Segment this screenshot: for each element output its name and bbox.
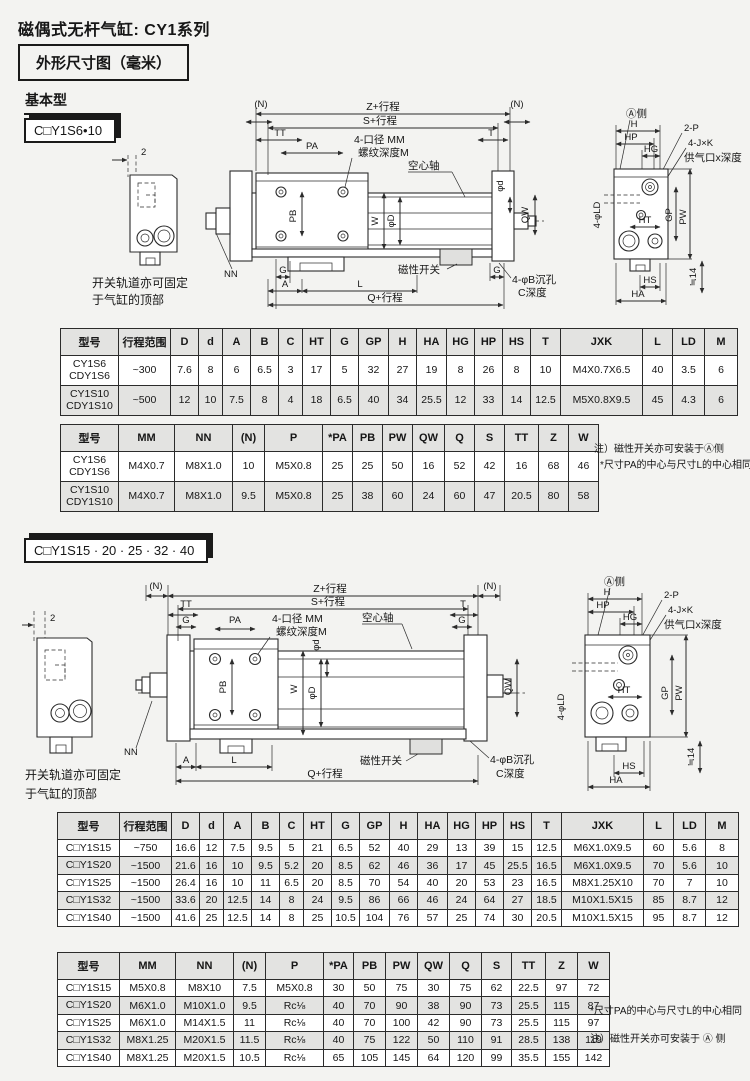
column-header: B bbox=[252, 813, 280, 840]
column-header: Z bbox=[546, 953, 578, 980]
value-cell: 76 bbox=[390, 909, 418, 926]
model-cell: C□Y1S40 bbox=[58, 1049, 120, 1066]
value-cell: M6X1.0 bbox=[120, 997, 176, 1014]
column-header: W bbox=[578, 953, 610, 980]
value-cell: 14 bbox=[503, 385, 531, 415]
column-header: H bbox=[390, 813, 418, 840]
value-cell: 6.5 bbox=[251, 356, 279, 386]
table-row: C□Y1S40~150041.62512.51482510.5104765725… bbox=[58, 909, 739, 926]
model-cell: C□Y1S25 bbox=[58, 874, 120, 891]
dim-approx14: ≒14 bbox=[688, 268, 699, 287]
column-header: NN bbox=[176, 953, 234, 980]
column-header: PB bbox=[354, 953, 386, 980]
column-header: L bbox=[644, 813, 674, 840]
value-cell: ~1500 bbox=[120, 874, 172, 891]
dim-g-left: G bbox=[279, 265, 286, 276]
value-cell: 42 bbox=[418, 1014, 450, 1031]
dim-phiD: φD bbox=[386, 214, 397, 227]
value-cell: 70 bbox=[360, 874, 390, 891]
dim-q-stroke: Q+行程 bbox=[307, 767, 343, 780]
label-hollow-shaft: 空心轴 bbox=[362, 611, 394, 624]
value-cell: M8X1.0 bbox=[175, 481, 233, 511]
value-cell: 47 bbox=[475, 481, 505, 511]
value-cell: 25 bbox=[448, 909, 476, 926]
magnetic-switch-block bbox=[410, 739, 442, 754]
value-cell: 20.5 bbox=[505, 481, 539, 511]
value-cell: 12 bbox=[706, 892, 739, 909]
dim-h: H bbox=[631, 119, 638, 130]
caption-line2: 于气缸的顶部 bbox=[25, 786, 97, 801]
dim-w: W bbox=[289, 684, 300, 693]
column-header: d bbox=[200, 813, 224, 840]
dim-a: A bbox=[282, 279, 289, 290]
value-cell: M8X10 bbox=[176, 980, 234, 997]
dim-pw: PW bbox=[678, 209, 689, 224]
column-header: QW bbox=[418, 953, 450, 980]
value-cell: 50 bbox=[354, 980, 386, 997]
column-header: H bbox=[389, 329, 417, 356]
column-header: QW bbox=[413, 425, 445, 452]
table-row: CY1S6 CDY1S6M4X0.7M8X1.010M5X0.825255016… bbox=[61, 452, 599, 482]
value-cell: M4X0.7 bbox=[119, 452, 175, 482]
value-cell: 27 bbox=[504, 892, 532, 909]
column-header: D bbox=[171, 329, 199, 356]
value-cell: 14 bbox=[252, 892, 280, 909]
column-header: PB bbox=[353, 425, 383, 452]
value-cell: 6.5 bbox=[332, 840, 360, 857]
label-bore: 4-口径 MM bbox=[354, 133, 405, 146]
value-cell: 16 bbox=[200, 874, 224, 891]
value-cell: 52 bbox=[445, 452, 475, 482]
dim-pa: PA bbox=[306, 141, 319, 152]
value-cell: 58 bbox=[569, 481, 599, 511]
label-thread-depth: 螺纹深度M bbox=[358, 146, 409, 159]
value-cell: 8.7 bbox=[674, 909, 706, 926]
value-cell: 70 bbox=[644, 874, 674, 891]
value-cell: 12.5 bbox=[531, 385, 561, 415]
label-c-depth: C深度 bbox=[518, 286, 547, 299]
value-cell: Rc⅛ bbox=[266, 1014, 324, 1031]
value-cell: 10 bbox=[706, 874, 739, 891]
table-row: C□Y1S15M5X0.8M8X107.5M5X0.83050753075622… bbox=[58, 980, 610, 997]
end-cap-left bbox=[230, 171, 252, 261]
table-row: C□Y1S20~150021.616109.55.2208.5624636174… bbox=[58, 857, 739, 874]
value-cell: 19 bbox=[417, 356, 447, 386]
value-cell: 33.6 bbox=[172, 892, 200, 909]
value-cell: M8X1.25 bbox=[120, 1049, 176, 1066]
column-header: JXK bbox=[561, 329, 643, 356]
value-cell: 142 bbox=[578, 1049, 610, 1066]
value-cell: 6 bbox=[223, 356, 251, 386]
dim-phiD: φD bbox=[307, 686, 318, 699]
value-cell: 60 bbox=[445, 481, 475, 511]
value-cell: 10 bbox=[224, 874, 252, 891]
value-cell: 23 bbox=[504, 874, 532, 891]
page-title: 磁偶式无杆气缸: CY1系列 bbox=[18, 16, 210, 40]
table-row: C□Y1S20M6X1.0M10X1.09.5Rc⅛40709038907325… bbox=[58, 997, 610, 1014]
value-cell: 40 bbox=[643, 356, 673, 386]
value-cell: 8 bbox=[280, 892, 304, 909]
column-header: P bbox=[266, 953, 324, 980]
value-cell: 12 bbox=[200, 840, 224, 857]
value-cell: M8X1.0 bbox=[175, 452, 233, 482]
value-cell: 5 bbox=[331, 356, 359, 386]
value-cell: 65 bbox=[324, 1049, 354, 1066]
column-header: 型号 bbox=[58, 813, 120, 840]
dim-h: H bbox=[604, 587, 611, 598]
value-cell: 34 bbox=[389, 385, 417, 415]
switch-rail bbox=[190, 729, 466, 739]
dim-l: L bbox=[357, 279, 362, 290]
value-cell: 4.3 bbox=[673, 385, 705, 415]
column-header: C bbox=[280, 813, 304, 840]
value-cell: M20X1.5 bbox=[176, 1032, 234, 1049]
model-cell: CY1S6 CDY1S6 bbox=[61, 356, 119, 386]
value-cell: 7.5 bbox=[223, 385, 251, 415]
column-header: B bbox=[251, 329, 279, 356]
value-cell: M6X1.0X9.5 bbox=[562, 857, 644, 874]
value-cell: 40 bbox=[324, 1014, 354, 1031]
value-cell: 50 bbox=[418, 1032, 450, 1049]
column-header: 行程范围 bbox=[119, 329, 171, 356]
value-cell: 10 bbox=[199, 385, 223, 415]
dim-n-right: (N) bbox=[483, 581, 496, 592]
value-cell: 73 bbox=[482, 997, 512, 1014]
shaft-nut-left bbox=[150, 673, 167, 697]
value-cell: 75 bbox=[386, 980, 418, 997]
column-header: TT bbox=[512, 953, 546, 980]
dim-t: T bbox=[488, 128, 494, 139]
value-cell: 91 bbox=[482, 1032, 512, 1049]
table-row: C□Y1S40M8X1.25M20X1.510.5Rc⅛651051456412… bbox=[58, 1049, 610, 1066]
value-cell: 8 bbox=[503, 356, 531, 386]
dim-hp: HP bbox=[596, 600, 609, 611]
label-4jxk: 4-J×K bbox=[668, 605, 694, 616]
value-cell: 30 bbox=[418, 980, 450, 997]
value-cell: 12 bbox=[706, 909, 739, 926]
column-header: 型号 bbox=[61, 329, 119, 356]
value-cell: M8X1.25X10 bbox=[562, 874, 644, 891]
column-header: HA bbox=[417, 329, 447, 356]
dim-pb: PB bbox=[218, 681, 229, 694]
column-header: C bbox=[279, 329, 303, 356]
table-row: C□Y1S25~150026.41610116.5208.57054402053… bbox=[58, 874, 739, 891]
value-cell: 16 bbox=[505, 452, 539, 482]
dim-l: L bbox=[231, 755, 236, 766]
value-cell: Rc⅛ bbox=[266, 1049, 324, 1066]
label-port-depth: 供气口x深度 bbox=[664, 618, 722, 631]
value-cell: 90 bbox=[450, 997, 482, 1014]
value-cell: 8 bbox=[280, 909, 304, 926]
column-header: JXK bbox=[562, 813, 644, 840]
dim-hp: HP bbox=[624, 132, 637, 143]
value-cell: M8X1.25 bbox=[120, 1032, 176, 1049]
note-2-line-2: 注）磁性开关亦可安装于 Ⓐ 侧 bbox=[590, 1030, 726, 1045]
side-view: Ⓐ侧 H HP HG 2-P 4-J×K 供气口x深度 HT 4- bbox=[556, 575, 722, 791]
value-cell: 25.5 bbox=[417, 385, 447, 415]
value-cell: 90 bbox=[386, 997, 418, 1014]
dim-a: A bbox=[183, 755, 190, 766]
value-cell: 50 bbox=[383, 452, 413, 482]
dim-qw: QW bbox=[520, 207, 531, 223]
dim-w: W bbox=[370, 216, 381, 225]
catalog-page: 磁偶式无杆气缸: CY1系列 外形尺寸图（毫米） 基本型 C□Y1S6•10 2… bbox=[0, 0, 750, 1081]
value-cell: M20X1.5 bbox=[176, 1049, 234, 1066]
label-counterbore: 4-φB沉孔 bbox=[490, 753, 535, 766]
value-cell: 4 bbox=[279, 385, 303, 415]
label-nn: NN bbox=[124, 747, 138, 758]
value-cell: Rc⅛ bbox=[266, 997, 324, 1014]
column-header: A bbox=[223, 329, 251, 356]
value-cell: 25.5 bbox=[504, 857, 532, 874]
label-magnetic-switch: 磁性开关 bbox=[398, 263, 440, 276]
data-table: 型号行程范围DdABCHTGGPHHAHGHPHSTJXKLLDMC□Y1S15… bbox=[57, 812, 739, 927]
value-cell: 8.7 bbox=[674, 892, 706, 909]
value-cell: 10 bbox=[233, 452, 265, 482]
dim-phid: φd bbox=[495, 180, 506, 191]
value-cell: 73 bbox=[482, 1014, 512, 1031]
dim-hg: HG bbox=[644, 144, 658, 155]
column-header: Q bbox=[445, 425, 475, 452]
value-cell: 9.5 bbox=[252, 857, 280, 874]
value-cell: 155 bbox=[546, 1049, 578, 1066]
model-cell: C□Y1S40 bbox=[58, 909, 120, 926]
value-cell: 5.6 bbox=[674, 857, 706, 874]
value-cell: M6X1.0X9.5 bbox=[562, 840, 644, 857]
end-cap-right bbox=[464, 635, 487, 741]
value-cell: 15 bbox=[504, 840, 532, 857]
value-cell: 3.5 bbox=[673, 356, 705, 386]
value-cell: 8.5 bbox=[332, 857, 360, 874]
value-cell: 35.5 bbox=[512, 1049, 546, 1066]
column-header: TT bbox=[505, 425, 539, 452]
model-cell: C□Y1S32 bbox=[58, 892, 120, 909]
column-header: Q bbox=[450, 953, 482, 980]
dim-qw: QW bbox=[503, 679, 514, 695]
end-view-left: 2 开关轨道亦可固定 于气缸的顶部 bbox=[92, 147, 188, 307]
value-cell: 25 bbox=[200, 909, 224, 926]
value-cell: 62 bbox=[482, 980, 512, 997]
table-row: CY1S10 CDY1S10M4X0.7M8X1.09.5M5X0.825386… bbox=[61, 481, 599, 511]
value-cell: 3 bbox=[279, 356, 303, 386]
value-cell: 16.5 bbox=[532, 874, 562, 891]
column-header: HS bbox=[504, 813, 532, 840]
dim-ht: HT bbox=[639, 215, 652, 226]
column-header: MM bbox=[119, 425, 175, 452]
value-cell: 46 bbox=[569, 452, 599, 482]
value-cell: 6.5 bbox=[280, 874, 304, 891]
value-cell: 8 bbox=[447, 356, 475, 386]
value-cell: 9.5 bbox=[234, 997, 266, 1014]
label-port-depth: 供气口x深度 bbox=[684, 151, 742, 164]
dim-hs: HS bbox=[622, 761, 635, 772]
value-cell: 145 bbox=[386, 1049, 418, 1066]
dim-tt: TT bbox=[274, 128, 286, 139]
column-header: HT bbox=[304, 813, 332, 840]
switch-rail-foot bbox=[140, 252, 160, 265]
value-cell: 64 bbox=[476, 892, 504, 909]
value-cell: 24 bbox=[304, 892, 332, 909]
column-header: (N) bbox=[233, 425, 265, 452]
column-header: MM bbox=[120, 953, 176, 980]
note-1-line-2: *尺寸PA的中心与尺寸L的中心相同 bbox=[600, 456, 750, 471]
table-row: C□Y1S25M6X1.0M14X1.511Rc⅛407010042907325… bbox=[58, 1014, 610, 1031]
dim-hg: HG bbox=[623, 612, 637, 623]
value-cell: 57 bbox=[418, 909, 448, 926]
value-cell: 11 bbox=[234, 1014, 266, 1031]
note-1-line-1: 注）磁性开关亦可安装于Ⓐ侧 bbox=[594, 440, 724, 455]
value-cell: ~300 bbox=[119, 356, 171, 386]
value-cell: 115 bbox=[546, 1014, 578, 1031]
label-hollow-shaft: 空心轴 bbox=[408, 159, 440, 172]
value-cell: M10X1.0 bbox=[176, 997, 234, 1014]
column-header: (N) bbox=[234, 953, 266, 980]
note-2-line-1: *尺寸PA的中心与尺寸L的中心相同 bbox=[590, 1002, 742, 1017]
value-cell: 6 bbox=[705, 356, 738, 386]
dimension-table-2: 型号MMNN(N)P*PAPBPWQWQSTTZWCY1S6 CDY1S6M4X… bbox=[60, 424, 599, 512]
dim-z-stroke: Z+行程 bbox=[313, 582, 347, 595]
value-cell: 29 bbox=[418, 840, 448, 857]
value-cell: 16 bbox=[200, 857, 224, 874]
shaft-nut-right bbox=[487, 675, 503, 697]
magnetic-switch-block bbox=[440, 249, 472, 265]
model-cell: C□Y1S15 bbox=[58, 980, 120, 997]
column-header: G bbox=[331, 329, 359, 356]
model-cell: C□Y1S15 bbox=[58, 840, 120, 857]
column-header: HG bbox=[447, 329, 475, 356]
slider-block bbox=[256, 173, 368, 255]
value-cell: 100 bbox=[386, 1014, 418, 1031]
value-cell: 11.5 bbox=[234, 1032, 266, 1049]
column-header: L bbox=[643, 329, 673, 356]
value-cell: 40 bbox=[359, 385, 389, 415]
value-cell: M10X1.5X15 bbox=[562, 909, 644, 926]
value-cell: M4X0.7 bbox=[119, 481, 175, 511]
label-nn: NN bbox=[224, 269, 238, 280]
label-2p: 2-P bbox=[684, 123, 699, 134]
value-cell: 12 bbox=[447, 385, 475, 415]
model-cell: C□Y1S20 bbox=[58, 857, 120, 874]
drawing-large-type: 2 开关轨道亦可固定 于气缸的顶部 bbox=[0, 565, 750, 810]
value-cell: 42 bbox=[475, 452, 505, 482]
column-header: NN bbox=[175, 425, 233, 452]
label-thread-depth: 螺纹深度M bbox=[276, 625, 327, 638]
value-cell: 18.5 bbox=[532, 892, 562, 909]
column-header: T bbox=[532, 813, 562, 840]
value-cell: M14X1.5 bbox=[176, 1014, 234, 1031]
column-header: S bbox=[475, 425, 505, 452]
data-table: 型号行程范围DdABCHTGGPHHAHGHPHSTJXKLLDMCY1S6 C… bbox=[60, 328, 738, 416]
value-cell: 17 bbox=[448, 857, 476, 874]
dim-approx14: ≒14 bbox=[686, 748, 697, 767]
dimension-table-1: 型号行程范围DdABCHTGGPHHAHGHPHSTJXKLLDMCY1S6 C… bbox=[60, 328, 738, 416]
value-cell: 72 bbox=[578, 980, 610, 997]
value-cell: 20.5 bbox=[532, 909, 562, 926]
dim-t: T bbox=[460, 599, 466, 610]
slider-block bbox=[194, 639, 278, 735]
value-cell: 10 bbox=[531, 356, 561, 386]
dimension-table-4: 型号MMNN(N)P*PAPBPWQWQSTTZWC□Y1S15M5X0.8M8… bbox=[57, 952, 610, 1067]
dim-phid: φd bbox=[311, 639, 322, 650]
value-cell: 9.5 bbox=[252, 840, 280, 857]
value-cell: 45 bbox=[643, 385, 673, 415]
value-cell: 16 bbox=[413, 452, 445, 482]
dim-tt: TT bbox=[180, 599, 192, 610]
value-cell: 32 bbox=[359, 356, 389, 386]
value-cell: 24 bbox=[448, 892, 476, 909]
column-header: LD bbox=[674, 813, 706, 840]
value-cell: 12.5 bbox=[532, 840, 562, 857]
value-cell: 5.2 bbox=[280, 857, 304, 874]
dim-g-right: G bbox=[458, 615, 465, 626]
value-cell: 20 bbox=[304, 857, 332, 874]
value-cell: 110 bbox=[450, 1032, 482, 1049]
dim-ht: HT bbox=[618, 685, 631, 696]
caption-line1: 开关轨道亦可固定 bbox=[92, 275, 188, 290]
value-cell: ~1500 bbox=[120, 892, 172, 909]
dim-gp: GP bbox=[664, 208, 675, 222]
dim-z-stroke: Z+行程 bbox=[366, 100, 400, 113]
value-cell: 7.6 bbox=[171, 356, 199, 386]
model-cell: C□Y1S20 bbox=[58, 997, 120, 1014]
value-cell: 115 bbox=[546, 997, 578, 1014]
value-cell: 5.6 bbox=[674, 840, 706, 857]
value-cell: 16.5 bbox=[532, 857, 562, 874]
column-header: Z bbox=[539, 425, 569, 452]
column-header: *PA bbox=[323, 425, 353, 452]
value-cell: 66 bbox=[390, 892, 418, 909]
column-header: T bbox=[531, 329, 561, 356]
caption-line1: 开关轨道亦可固定 bbox=[25, 767, 121, 782]
cylinder-end-face bbox=[37, 638, 92, 737]
value-cell: 122 bbox=[386, 1032, 418, 1049]
column-header: P bbox=[265, 425, 323, 452]
end-cap-left bbox=[167, 635, 190, 741]
model-cell: CY1S6 CDY1S6 bbox=[61, 452, 119, 482]
dim-ha: HA bbox=[609, 775, 623, 786]
value-cell: 40 bbox=[418, 874, 448, 891]
value-cell: 6.5 bbox=[331, 385, 359, 415]
dim-q-stroke: Q+行程 bbox=[367, 291, 403, 304]
value-cell: 7 bbox=[674, 874, 706, 891]
value-cell: 60 bbox=[644, 840, 674, 857]
value-cell: 14 bbox=[252, 909, 280, 926]
column-header: S bbox=[482, 953, 512, 980]
label-4-phi-ld: 4-φLD bbox=[592, 201, 603, 228]
value-cell: 52 bbox=[360, 840, 390, 857]
value-cell: 46 bbox=[390, 857, 418, 874]
dimension-table-3: 型号行程范围DdABCHTGGPHHAHGHPHSTJXKLLDMC□Y1S15… bbox=[57, 812, 739, 927]
dim-hs: HS bbox=[643, 275, 656, 286]
value-cell: 16.6 bbox=[172, 840, 200, 857]
value-cell: M5X0.8 bbox=[266, 980, 324, 997]
column-header: *PA bbox=[324, 953, 354, 980]
value-cell: 40 bbox=[324, 1032, 354, 1049]
value-cell: 75 bbox=[354, 1032, 386, 1049]
column-header: HS bbox=[503, 329, 531, 356]
value-cell: 38 bbox=[353, 481, 383, 511]
value-cell: Rc⅛ bbox=[266, 1032, 324, 1049]
dim-s-stroke: S+行程 bbox=[311, 595, 346, 608]
value-cell: 38 bbox=[418, 997, 450, 1014]
value-cell: 28.5 bbox=[512, 1032, 546, 1049]
value-cell: M5X0.8 bbox=[265, 481, 323, 511]
table-row: C□Y1S15~75016.6127.59.55216.552402913391… bbox=[58, 840, 739, 857]
value-cell: 75 bbox=[450, 980, 482, 997]
value-cell: 36 bbox=[418, 857, 448, 874]
value-cell: 9.5 bbox=[332, 892, 360, 909]
column-header: HA bbox=[418, 813, 448, 840]
